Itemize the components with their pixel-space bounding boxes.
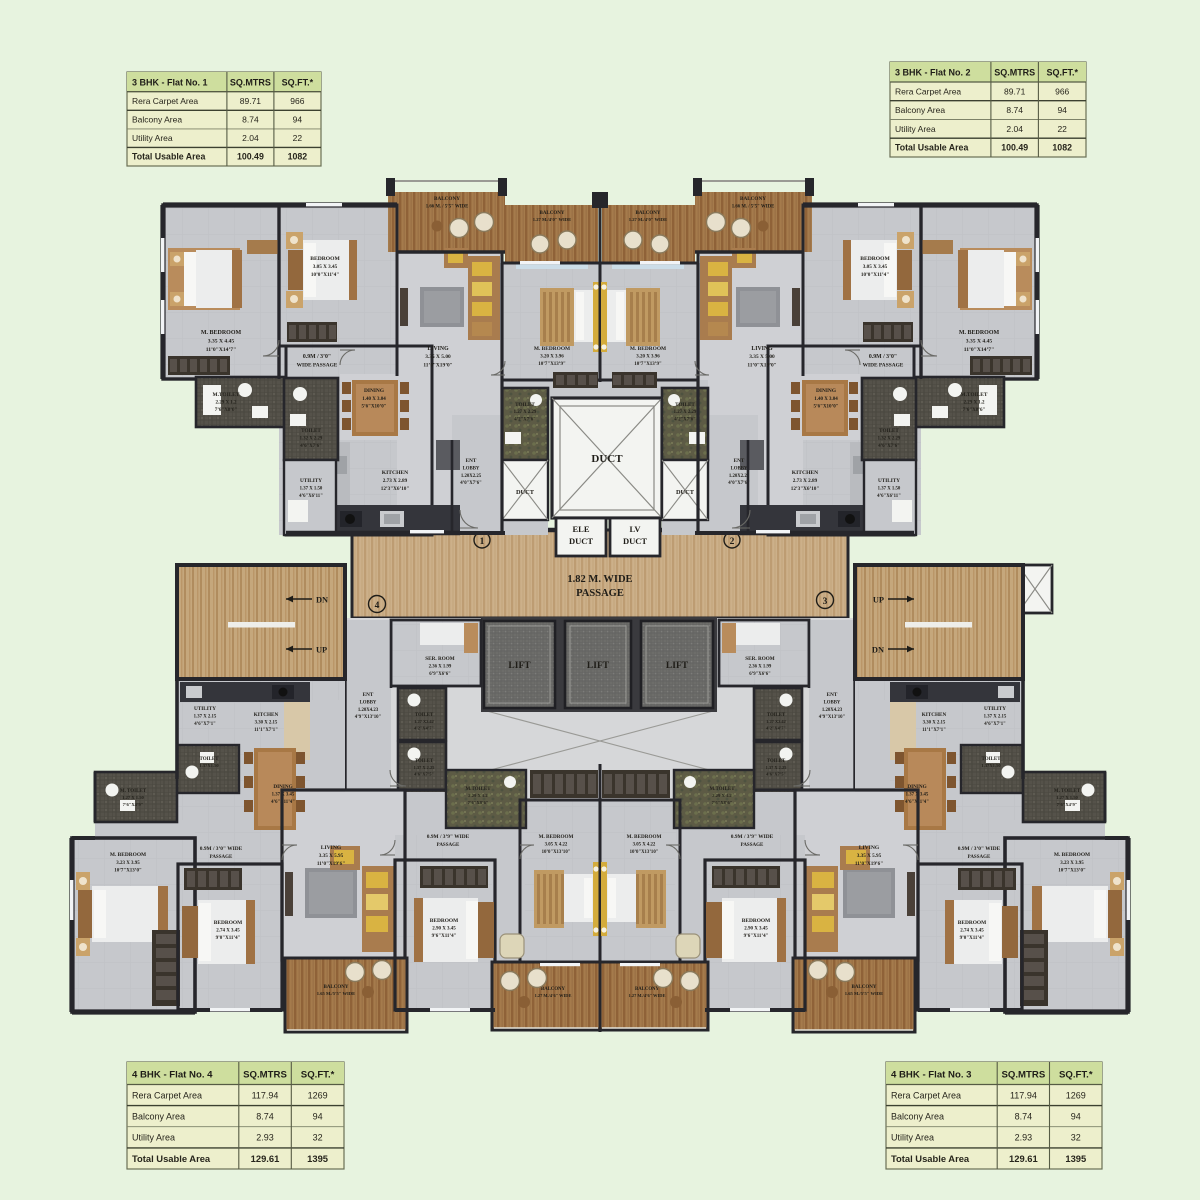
svg-text:1.37X1.50: 1.37X1.50: [199, 763, 219, 768]
svg-text:129.61: 129.61: [251, 1153, 280, 1164]
svg-text:1.32 X 2.29: 1.32 X 2.29: [878, 436, 901, 441]
svg-text:M. TOILET: M. TOILET: [1054, 789, 1081, 794]
svg-text:3.35 X 4.45: 3.35 X 4.45: [966, 339, 993, 345]
svg-text:2.29 X 1.2: 2.29 X 1.2: [712, 793, 732, 798]
svg-text:BEDROOM: BEDROOM: [430, 918, 458, 924]
svg-text:BEDROOM: BEDROOM: [310, 256, 340, 262]
svg-text:SQ.MTRS: SQ.MTRS: [243, 1069, 287, 1080]
svg-text:Balcony Area: Balcony Area: [132, 1112, 185, 1122]
svg-text:10’7"X13’9": 10’7"X13’9": [634, 362, 662, 367]
svg-text:10’7"X13’0": 10’7"X13’0": [114, 869, 142, 874]
svg-text:3.20 X 3.96: 3.20 X 3.96: [540, 355, 564, 360]
svg-text:4’9"X13’10": 4’9"X13’10": [819, 715, 846, 720]
svg-text:0.9M / 3’0": 0.9M / 3’0": [303, 354, 331, 360]
svg-text:11’0"X19’0": 11’0"X19’0": [747, 362, 776, 368]
svg-text:BALCONY: BALCONY: [323, 985, 348, 990]
svg-text:2.04: 2.04: [1006, 124, 1023, 134]
svg-text:PASSAGE: PASSAGE: [576, 588, 624, 599]
svg-text:ENT: ENT: [466, 458, 477, 464]
svg-text:1.65 M./5’5" WIDE: 1.65 M./5’5" WIDE: [845, 991, 883, 996]
svg-text:1.82 M. WIDE: 1.82 M. WIDE: [567, 574, 632, 585]
svg-text:4’2"X4’7": 4’2"X4’7": [766, 726, 786, 731]
svg-text:1.27 X 1.50: 1.27 X 1.50: [1056, 795, 1078, 800]
svg-text:100.49: 100.49: [237, 152, 264, 162]
svg-text:8.74: 8.74: [256, 1112, 274, 1122]
svg-text:BALCONY: BALCONY: [635, 211, 660, 216]
svg-text:ENT: ENT: [827, 692, 838, 698]
svg-text:4’2"X7’6": 4’2"X7’6": [674, 417, 696, 422]
svg-text:ENT: ENT: [363, 692, 374, 698]
svg-text:1.20X4.23: 1.20X4.23: [822, 708, 843, 713]
svg-text:KITCHEN: KITCHEN: [254, 712, 279, 718]
svg-text:SQ.FT.*: SQ.FT.*: [1046, 68, 1078, 78]
svg-text:0.9M / 3’9" WIDE: 0.9M / 3’9" WIDE: [731, 834, 774, 840]
svg-text:M. BEDROOM: M. BEDROOM: [539, 834, 574, 840]
svg-text:8.74: 8.74: [242, 115, 259, 125]
svg-text:4 BHK - Flat No. 3: 4 BHK - Flat No. 3: [891, 1069, 972, 1080]
svg-text:3: 3: [823, 597, 828, 607]
svg-text:6’9"X6’6": 6’9"X6’6": [429, 672, 451, 677]
svg-text:DN: DN: [872, 646, 884, 655]
svg-text:Balcony Area: Balcony Area: [895, 105, 945, 115]
svg-text:LV: LV: [629, 524, 641, 534]
svg-text:4: 4: [375, 601, 380, 611]
svg-text:TOILET: TOILET: [415, 713, 434, 718]
svg-text:DUCT: DUCT: [591, 453, 623, 465]
svg-text:M. BEDROOM: M. BEDROOM: [110, 852, 146, 858]
svg-text:4’6"X7’1": 4’6"X7’1": [984, 722, 1006, 727]
svg-text:PASSAGE: PASSAGE: [968, 855, 991, 860]
svg-text:TOILET: TOILET: [301, 428, 321, 434]
svg-text:7’6"X8’6": 7’6"X8’6": [215, 408, 238, 413]
svg-text:1.66 M. / 5’5" WIDE: 1.66 M. / 5’5" WIDE: [426, 204, 469, 209]
svg-text:UP: UP: [873, 596, 884, 605]
svg-text:1.65 M./5’5" WIDE: 1.65 M./5’5" WIDE: [317, 991, 355, 996]
svg-text:Balcony Area: Balcony Area: [132, 115, 182, 125]
svg-text:8.74: 8.74: [1006, 105, 1023, 115]
svg-text:1269: 1269: [308, 1090, 328, 1100]
svg-text:SQ.MTRS: SQ.MTRS: [230, 77, 271, 87]
svg-text:966: 966: [290, 96, 304, 106]
svg-text:4 BHK - Flat No. 4: 4 BHK - Flat No. 4: [132, 1069, 213, 1080]
svg-text:TOILET: TOILET: [767, 759, 786, 764]
svg-text:94: 94: [1071, 1112, 1081, 1122]
svg-text:4’0"X7’6": 4’0"X7’6": [460, 481, 482, 486]
svg-text:32: 32: [313, 1133, 323, 1143]
svg-text:1.27 M./4’6" WIDE: 1.27 M./4’6" WIDE: [535, 993, 572, 998]
svg-text:3.35 X 5.95: 3.35 X 5.95: [857, 853, 882, 859]
svg-text:4’6"X7’1": 4’6"X7’1": [194, 722, 216, 727]
svg-text:TOILET: TOILET: [767, 713, 786, 718]
svg-text:DUCT: DUCT: [623, 536, 647, 546]
svg-text:SQ.FT.*: SQ.FT.*: [282, 77, 314, 87]
svg-text:11’0"X19’6": 11’0"X19’6": [317, 861, 345, 867]
svg-text:1.37 X 2.15: 1.37 X 2.15: [194, 714, 217, 719]
svg-text:DUCT: DUCT: [516, 489, 535, 496]
svg-text:2.73 X 2.89: 2.73 X 2.89: [793, 478, 818, 484]
svg-text:2.29 X 1.2: 2.29 X 1.2: [468, 793, 488, 798]
svg-text:M. BEDROOM: M. BEDROOM: [627, 834, 662, 840]
svg-text:LIFT: LIFT: [508, 661, 531, 671]
svg-text:LOBBY: LOBBY: [824, 700, 841, 705]
svg-text:TOILET: TOILET: [515, 402, 535, 408]
svg-text:1.37 X 1.50: 1.37 X 1.50: [300, 486, 323, 491]
svg-text:1.20X2.25: 1.20X2.25: [461, 474, 482, 479]
svg-text:BALCONY: BALCONY: [740, 196, 766, 202]
svg-text:9’0"X11’4": 9’0"X11’4": [960, 936, 985, 941]
svg-text:Utility Area: Utility Area: [891, 1133, 934, 1143]
svg-text:1.40 X 3.04: 1.40 X 3.04: [814, 397, 838, 402]
svg-text:M. BEDROOM: M. BEDROOM: [534, 346, 570, 352]
svg-text:3.20 X 3.96: 3.20 X 3.96: [636, 355, 660, 360]
svg-text:1.66 M. / 5’5" WIDE: 1.66 M. / 5’5" WIDE: [732, 204, 775, 209]
svg-text:7’6"X8’6": 7’6"X8’6": [963, 408, 986, 413]
svg-text:SQ.FT.*: SQ.FT.*: [1059, 1069, 1093, 1080]
svg-text:BALCONY: BALCONY: [539, 211, 564, 216]
svg-text:1.37 X 2.25: 1.37 X 2.25: [766, 765, 788, 770]
svg-text:3.30 X 2.15: 3.30 X 2.15: [255, 720, 278, 725]
svg-text:2.36 X 1.99: 2.36 X 1.99: [429, 664, 452, 669]
svg-text:SQ.FT.*: SQ.FT.*: [301, 1069, 335, 1080]
svg-text:LIFT: LIFT: [587, 661, 610, 671]
svg-text:12’3"X6’10": 12’3"X6’10": [791, 486, 820, 492]
svg-text:22: 22: [1057, 124, 1067, 134]
svg-text:PASSAGE: PASSAGE: [437, 843, 460, 848]
svg-text:Total Usable Area: Total Usable Area: [891, 1153, 970, 1164]
svg-text:BALCONY: BALCONY: [541, 987, 566, 992]
svg-text:9’6"X11’4": 9’6"X11’4": [744, 934, 769, 939]
svg-text:UTILITY: UTILITY: [194, 706, 216, 712]
svg-text:Utility Area: Utility Area: [132, 133, 173, 143]
svg-text:0.9M / 3’9" WIDE: 0.9M / 3’9" WIDE: [427, 834, 470, 840]
svg-text:PASSAGE: PASSAGE: [741, 843, 764, 848]
svg-text:TOILET: TOILET: [879, 428, 899, 434]
svg-text:1269: 1269: [1066, 1090, 1086, 1100]
svg-text:966: 966: [1055, 86, 1069, 96]
svg-text:5’6"X10’0": 5’6"X10’0": [814, 405, 839, 410]
svg-text:Rera Carpet Area: Rera Carpet Area: [132, 1090, 202, 1100]
svg-text:BEDROOM: BEDROOM: [214, 920, 242, 926]
svg-text:2.73 X 2.89: 2.73 X 2.89: [383, 478, 408, 484]
svg-text:LIVING: LIVING: [751, 346, 773, 352]
svg-text:3.35 X 4.45: 3.35 X 4.45: [208, 339, 235, 345]
svg-text:89.71: 89.71: [1004, 86, 1026, 96]
svg-text:11’1"X7’1": 11’1"X7’1": [922, 728, 946, 733]
svg-text:2.29 X 1.2: 2.29 X 1.2: [963, 401, 985, 406]
svg-text:ELE: ELE: [572, 524, 589, 534]
svg-text:1.27 X 2.29: 1.27 X 2.29: [674, 410, 697, 415]
svg-text:LIVING: LIVING: [427, 346, 449, 352]
svg-text:1082: 1082: [288, 152, 308, 162]
svg-text:Utility Area: Utility Area: [132, 1133, 175, 1143]
svg-text:M.TOILET: M.TOILET: [960, 392, 987, 398]
svg-text:WIDE PASSAGE: WIDE PASSAGE: [297, 362, 338, 368]
svg-text:1.27 X 1.50: 1.27 X 1.50: [122, 795, 144, 800]
svg-text:3.05 X 4.22: 3.05 X 4.22: [545, 842, 568, 847]
svg-text:1395: 1395: [1065, 1153, 1086, 1164]
svg-text:4’6"X7’5": 4’6"X7’5": [766, 772, 786, 777]
svg-text:M.TOILET: M.TOILET: [709, 787, 735, 792]
svg-text:94: 94: [293, 115, 303, 125]
svg-text:BALCONY: BALCONY: [635, 987, 660, 992]
svg-text:1.37 X 2.25: 1.37 X 2.25: [414, 765, 436, 770]
svg-text:BEDROOM: BEDROOM: [742, 918, 770, 924]
svg-text:1.27 X2.42: 1.27 X2.42: [766, 719, 786, 724]
svg-text:1.27 M./4’0" WIDE: 1.27 M./4’0" WIDE: [629, 217, 667, 222]
svg-text:12’3"X6’10": 12’3"X6’10": [381, 486, 410, 492]
svg-text:3.05 X 3.45: 3.05 X 3.45: [313, 264, 338, 270]
svg-text:1: 1: [480, 537, 485, 547]
svg-text:4’6"X6’11": 4’6"X6’11": [877, 494, 901, 499]
svg-text:UTILITY: UTILITY: [300, 478, 322, 484]
svg-text:100.49: 100.49: [1001, 143, 1028, 153]
svg-text:1395: 1395: [307, 1153, 328, 1164]
svg-text:11’0"X19’6": 11’0"X19’6": [855, 861, 883, 867]
svg-text:Rera Carpet Area: Rera Carpet Area: [132, 96, 198, 106]
svg-text:4’6"X6’11": 4’6"X6’11": [299, 494, 323, 499]
svg-text:2.04: 2.04: [242, 133, 259, 143]
svg-text:10’0"X11’4": 10’0"X11’4": [311, 272, 339, 278]
svg-text:ENT: ENT: [734, 458, 745, 464]
svg-text:SER. ROOM: SER. ROOM: [425, 656, 455, 662]
svg-text:2.90 X 3.45: 2.90 X 3.45: [744, 927, 768, 932]
svg-text:2: 2: [730, 537, 735, 547]
svg-text:3.35 X 5.95: 3.35 X 5.95: [319, 853, 344, 859]
svg-text:4’6"X7’6": 4’6"X7’6": [300, 444, 322, 449]
svg-text:0.9M / 3’0" WIDE: 0.9M / 3’0" WIDE: [200, 846, 243, 852]
svg-text:94: 94: [1057, 105, 1067, 115]
svg-text:3.05 X 3.45: 3.05 X 3.45: [863, 264, 888, 270]
svg-text:4’6"X7’6": 4’6"X7’6": [878, 444, 900, 449]
svg-text:LIVING: LIVING: [321, 845, 342, 851]
svg-text:11’0"X14’7": 11’0"X14’7": [964, 347, 994, 353]
svg-text:1.20X4.23: 1.20X4.23: [358, 708, 379, 713]
svg-text:KITCHEN: KITCHEN: [792, 470, 818, 476]
svg-text:M.TOILET: M.TOILET: [465, 787, 491, 792]
svg-text:1.27 X 2.29: 1.27 X 2.29: [514, 410, 537, 415]
svg-text:94: 94: [313, 1112, 323, 1122]
svg-text:M. BEDROOM: M. BEDROOM: [201, 330, 242, 336]
svg-text:UTILITY: UTILITY: [878, 478, 900, 484]
svg-text:9’6"X11’4": 9’6"X11’4": [432, 934, 457, 939]
svg-text:6’9"X6’6": 6’9"X6’6": [749, 672, 771, 677]
svg-text:BALCONY: BALCONY: [434, 196, 460, 202]
svg-text:3.05 X 4.22: 3.05 X 4.22: [633, 842, 656, 847]
svg-text:TOILET: TOILET: [981, 757, 1001, 762]
svg-text:1.20X2.25: 1.20X2.25: [729, 474, 750, 479]
svg-text:2.93: 2.93: [256, 1133, 274, 1143]
svg-text:BALCONY: BALCONY: [851, 985, 876, 990]
svg-text:2.36 X 1.99: 2.36 X 1.99: [749, 664, 772, 669]
svg-text:LOBBY: LOBBY: [731, 466, 748, 471]
svg-text:4’2"X4’7": 4’2"X4’7": [414, 726, 434, 731]
svg-text:7’6"X4’9": 7’6"X4’9": [1057, 802, 1078, 807]
svg-text:2.90 X 3.45: 2.90 X 3.45: [432, 927, 456, 932]
svg-text:2.74 X 3.45: 2.74 X 3.45: [960, 929, 984, 934]
svg-text:2.93: 2.93: [1015, 1133, 1033, 1143]
svg-text:1.32 X 2.29: 1.32 X 2.29: [300, 436, 323, 441]
svg-text:3.23 X 3.95: 3.23 X 3.95: [1060, 861, 1084, 866]
svg-text:0.9M / 3’0" WIDE: 0.9M / 3’0" WIDE: [958, 846, 1001, 852]
svg-text:3.30 X 2.15: 3.30 X 2.15: [923, 720, 946, 725]
svg-text:KITCHEN: KITCHEN: [922, 712, 947, 718]
svg-text:0.9M / 3’0": 0.9M / 3’0": [869, 354, 897, 360]
svg-text:KITCHEN: KITCHEN: [382, 470, 408, 476]
svg-text:SER. ROOM: SER. ROOM: [745, 656, 775, 662]
svg-text:TOILET: TOILET: [415, 759, 434, 764]
svg-text:BEDROOM: BEDROOM: [958, 920, 986, 926]
svg-text:1.37X1.50: 1.37X1.50: [981, 763, 1001, 768]
svg-text:M. BEDROOM: M. BEDROOM: [630, 346, 666, 352]
svg-text:UP: UP: [316, 646, 327, 655]
svg-text:DUCT: DUCT: [569, 536, 593, 546]
svg-text:10’0"X13’10": 10’0"X13’10": [542, 850, 571, 855]
svg-text:22: 22: [293, 133, 303, 143]
svg-text:Utility Area: Utility Area: [895, 124, 936, 134]
svg-text:7’6"X8’6": 7’6"X8’6": [712, 800, 733, 805]
svg-text:DN: DN: [316, 596, 328, 605]
svg-text:5’6"X10’0": 5’6"X10’0": [362, 405, 387, 410]
svg-text:4’2"X7’6": 4’2"X7’6": [514, 417, 536, 422]
svg-text:117.94: 117.94: [1010, 1090, 1037, 1100]
svg-text:11’0"X19’0": 11’0"X19’0": [423, 362, 452, 368]
svg-text:TOILET: TOILET: [199, 757, 219, 762]
svg-text:M. BEDROOM: M. BEDROOM: [959, 330, 1000, 336]
svg-text:117.94: 117.94: [252, 1090, 279, 1100]
svg-text:LIVING: LIVING: [859, 845, 880, 851]
svg-text:Total Usable Area: Total Usable Area: [895, 143, 968, 153]
svg-text:10’0"X13’10": 10’0"X13’10": [630, 850, 659, 855]
svg-text:3 BHK - Flat No. 1: 3 BHK - Flat No. 1: [132, 77, 208, 87]
svg-text:4’9"X13’10": 4’9"X13’10": [355, 715, 382, 720]
svg-text:1.37 X 2.15: 1.37 X 2.15: [984, 714, 1007, 719]
svg-text:M. BEDROOM: M. BEDROOM: [1054, 852, 1090, 858]
svg-text:2.74 X 3.45: 2.74 X 3.45: [216, 929, 240, 934]
svg-text:10’7"X13’9": 10’7"X13’9": [538, 362, 566, 367]
svg-text:Total Usable Area: Total Usable Area: [132, 152, 205, 162]
svg-text:TOILET: TOILET: [675, 402, 695, 408]
svg-text:11’1"X7’1": 11’1"X7’1": [254, 728, 278, 733]
svg-text:10’0"X11’4": 10’0"X11’4": [861, 272, 889, 278]
svg-text:1.27 X2.42: 1.27 X2.42: [414, 719, 434, 724]
svg-text:M. TOILET: M. TOILET: [120, 789, 147, 794]
svg-text:LOBBY: LOBBY: [360, 700, 377, 705]
svg-text:8.74: 8.74: [1015, 1112, 1033, 1122]
svg-text:Balcony Area: Balcony Area: [891, 1112, 944, 1122]
svg-text:7’6"X4’9": 7’6"X4’9": [123, 802, 144, 807]
svg-text:BEDROOM: BEDROOM: [860, 256, 890, 262]
svg-text:Rera Carpet Area: Rera Carpet Area: [891, 1090, 961, 1100]
svg-text:129.61: 129.61: [1009, 1153, 1038, 1164]
svg-text:PASSAGE: PASSAGE: [210, 855, 233, 860]
svg-text:2.29 X 1.2: 2.29 X 1.2: [215, 401, 237, 406]
svg-text:11’0"X14’7": 11’0"X14’7": [206, 347, 236, 353]
svg-text:DUCT: DUCT: [676, 489, 695, 496]
svg-text:89.71: 89.71: [240, 96, 262, 106]
svg-text:1.37 X 1.50: 1.37 X 1.50: [878, 486, 901, 491]
svg-text:LIFT: LIFT: [666, 661, 689, 671]
svg-text:3.35 X 5.00: 3.35 X 5.00: [425, 354, 451, 360]
svg-text:DINING: DINING: [364, 388, 385, 394]
svg-text:SQ.MTRS: SQ.MTRS: [1002, 1069, 1046, 1080]
svg-text:1.27 M./4’6" WIDE: 1.27 M./4’6" WIDE: [629, 993, 666, 998]
svg-text:7’6"X8’6": 7’6"X8’6": [468, 800, 489, 805]
svg-text:1.40 X 3.04: 1.40 X 3.04: [362, 397, 386, 402]
svg-text:10’7"X13’0": 10’7"X13’0": [1058, 869, 1086, 874]
svg-text:LOBBY: LOBBY: [463, 466, 480, 471]
svg-text:M.TOILET: M.TOILET: [212, 392, 239, 398]
svg-text:3 BHK - Flat No. 2: 3 BHK - Flat No. 2: [895, 68, 971, 78]
svg-text:9’0"X11’4": 9’0"X11’4": [216, 936, 241, 941]
svg-text:DINING: DINING: [816, 388, 837, 394]
svg-text:Rera Carpet Area: Rera Carpet Area: [895, 86, 961, 96]
svg-text:1082: 1082: [1052, 143, 1072, 153]
svg-text:1.27 M./4’0" WIDE: 1.27 M./4’0" WIDE: [533, 217, 571, 222]
svg-text:UTILITY: UTILITY: [984, 706, 1006, 712]
svg-text:3.35 X 5.00: 3.35 X 5.00: [749, 354, 775, 360]
svg-text:32: 32: [1071, 1133, 1081, 1143]
svg-text:Total Usable Area: Total Usable Area: [132, 1153, 211, 1164]
svg-text:SQ.MTRS: SQ.MTRS: [994, 68, 1035, 78]
svg-text:4’6"X7’5": 4’6"X7’5": [414, 772, 434, 777]
svg-text:WIDE PASSAGE: WIDE PASSAGE: [863, 362, 904, 368]
svg-text:3.23 X 3.95: 3.23 X 3.95: [116, 861, 140, 866]
